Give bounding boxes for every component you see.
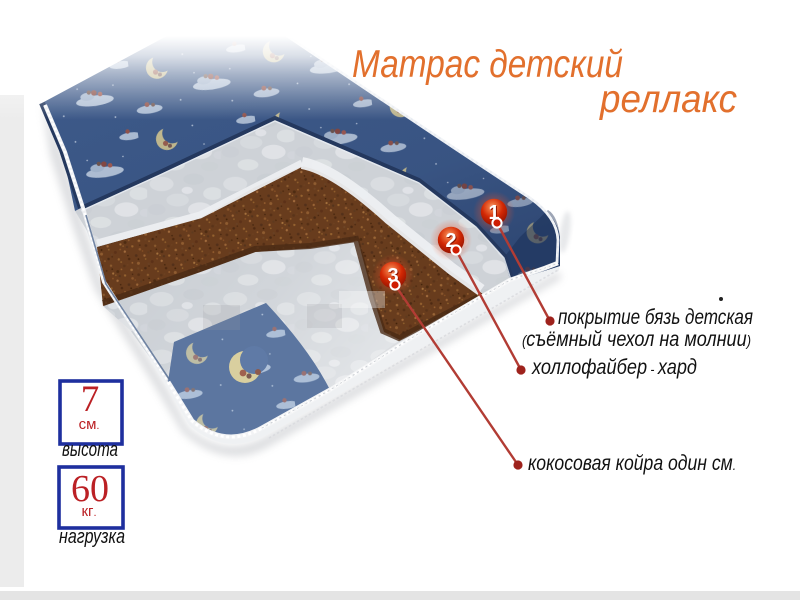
svg-text:холлофайбер - хард: холлофайбер - хард: [531, 356, 697, 379]
svg-text:Матрас детский: Матрас детский: [352, 43, 623, 86]
svg-text:покрытие бязь детская: покрытие бязь детская: [558, 306, 753, 329]
svg-text:(съёмный чехол на молнии): (съёмный чехол на молнии): [522, 328, 751, 351]
svg-text:см.: см.: [79, 416, 100, 433]
svg-text:нагрузка: нагрузка: [59, 526, 125, 548]
svg-text:7: 7: [81, 379, 100, 420]
svg-text:высота: высота: [62, 439, 118, 461]
svg-text:кокосовая койра один см.: кокосовая койра один см.: [528, 452, 736, 475]
svg-text:реллакс: реллакс: [599, 78, 737, 121]
